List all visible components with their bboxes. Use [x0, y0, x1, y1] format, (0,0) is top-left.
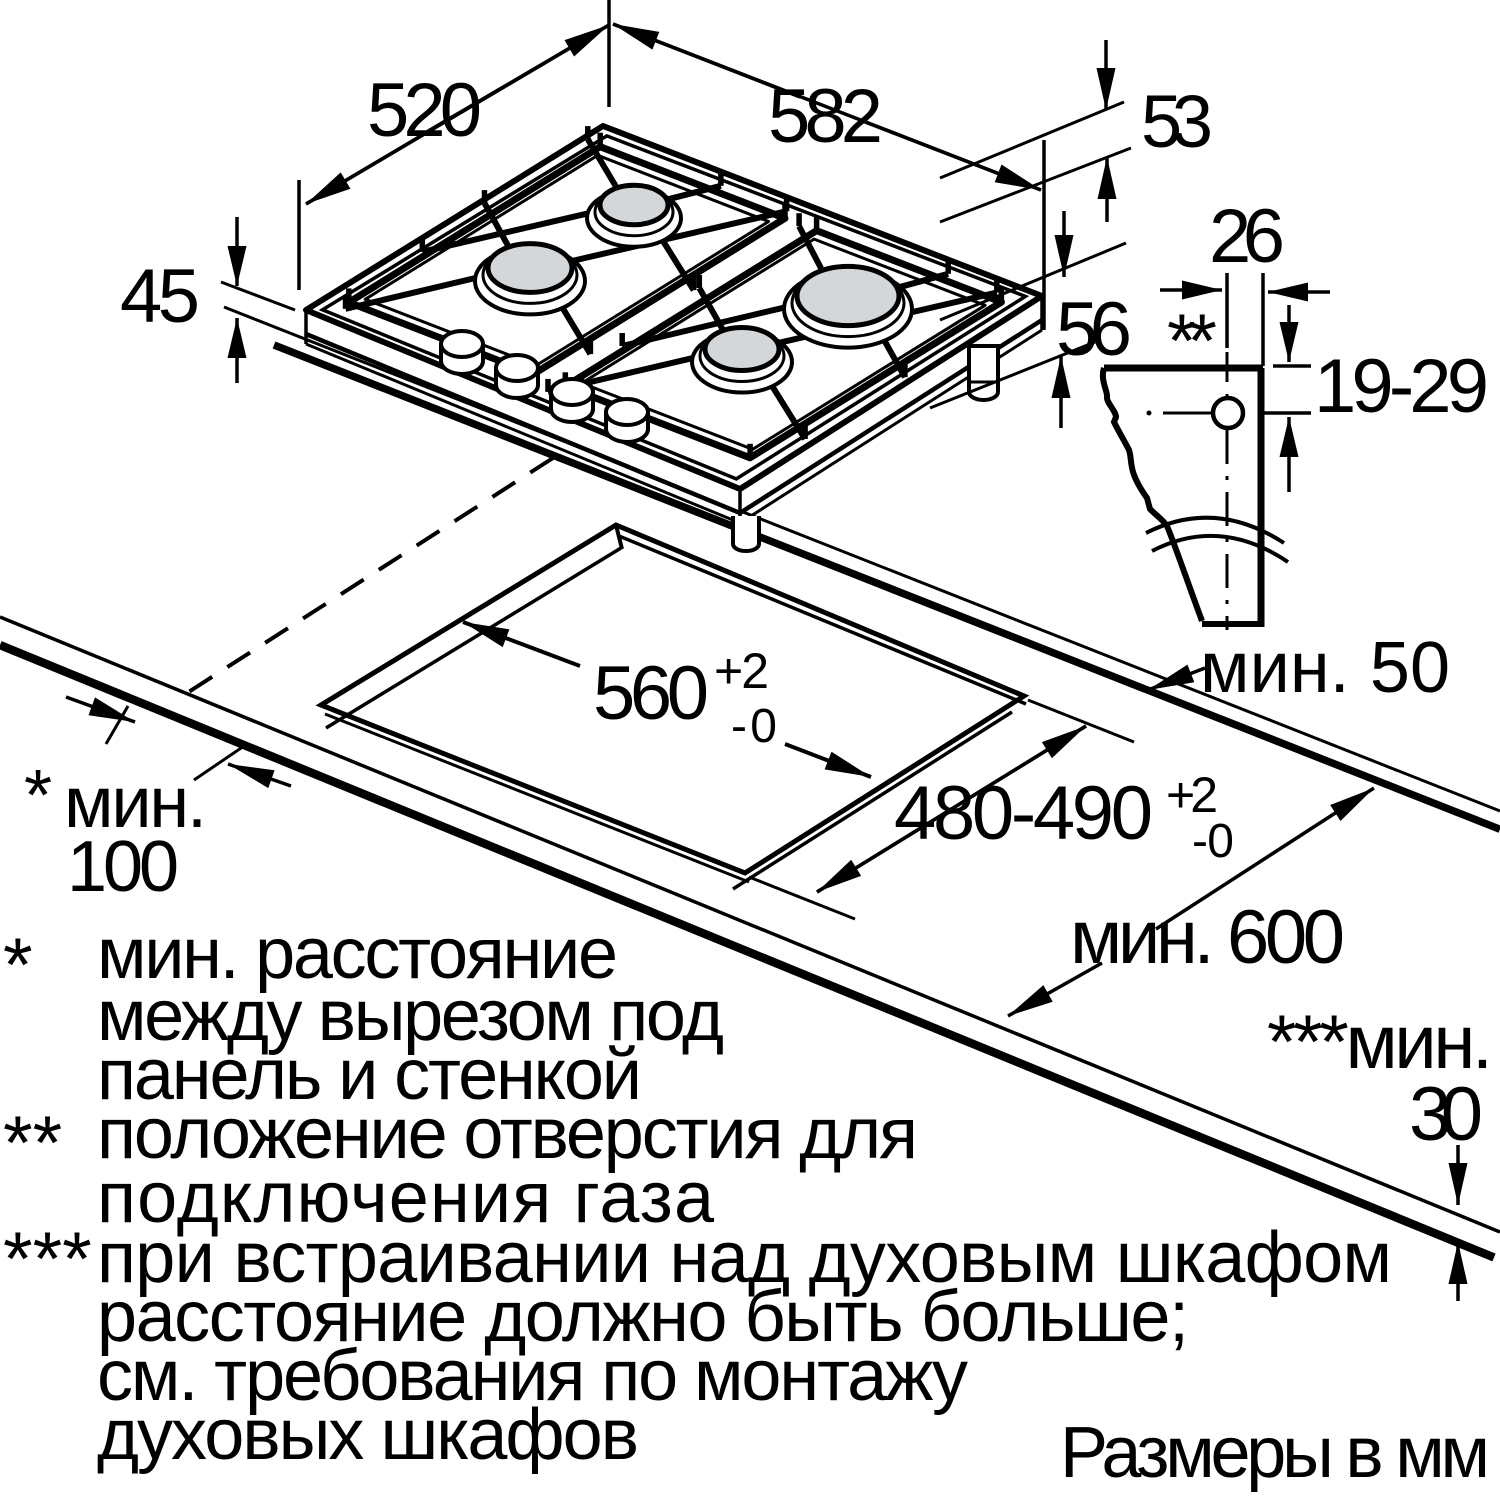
svg-text:духовых шкафов: духовых шкафов	[97, 1395, 639, 1475]
svg-text:520: 520	[367, 68, 482, 153]
svg-text:***: ***	[3, 1217, 92, 1302]
svg-text:53: 53	[1141, 80, 1213, 163]
svg-text:19-29: 19-29	[1314, 344, 1489, 429]
svg-text:56: 56	[1056, 287, 1132, 372]
svg-text:Размеры в мм: Размеры в мм	[1060, 1413, 1490, 1493]
svg-text:**: **	[3, 1101, 62, 1186]
svg-text:**: **	[1167, 299, 1217, 384]
svg-text:*: *	[3, 923, 33, 1008]
svg-text:-0: -0	[1192, 815, 1234, 868]
svg-text:480-490: 480-490	[894, 771, 1153, 856]
svg-text:+2: +2	[714, 643, 769, 699]
svg-text:26: 26	[1209, 194, 1285, 279]
svg-text:100: 100	[67, 827, 179, 907]
svg-text:560: 560	[593, 651, 709, 736]
svg-text:*: *	[24, 756, 52, 836]
svg-text:582: 582	[768, 74, 883, 159]
svg-text:-0: -0	[731, 700, 777, 753]
svg-text:45: 45	[120, 254, 200, 339]
svg-text:мин. 600: мин. 600	[1070, 895, 1345, 980]
svg-text:30: 30	[1409, 1072, 1483, 1157]
svg-text:мин. 50: мин. 50	[1200, 628, 1450, 708]
